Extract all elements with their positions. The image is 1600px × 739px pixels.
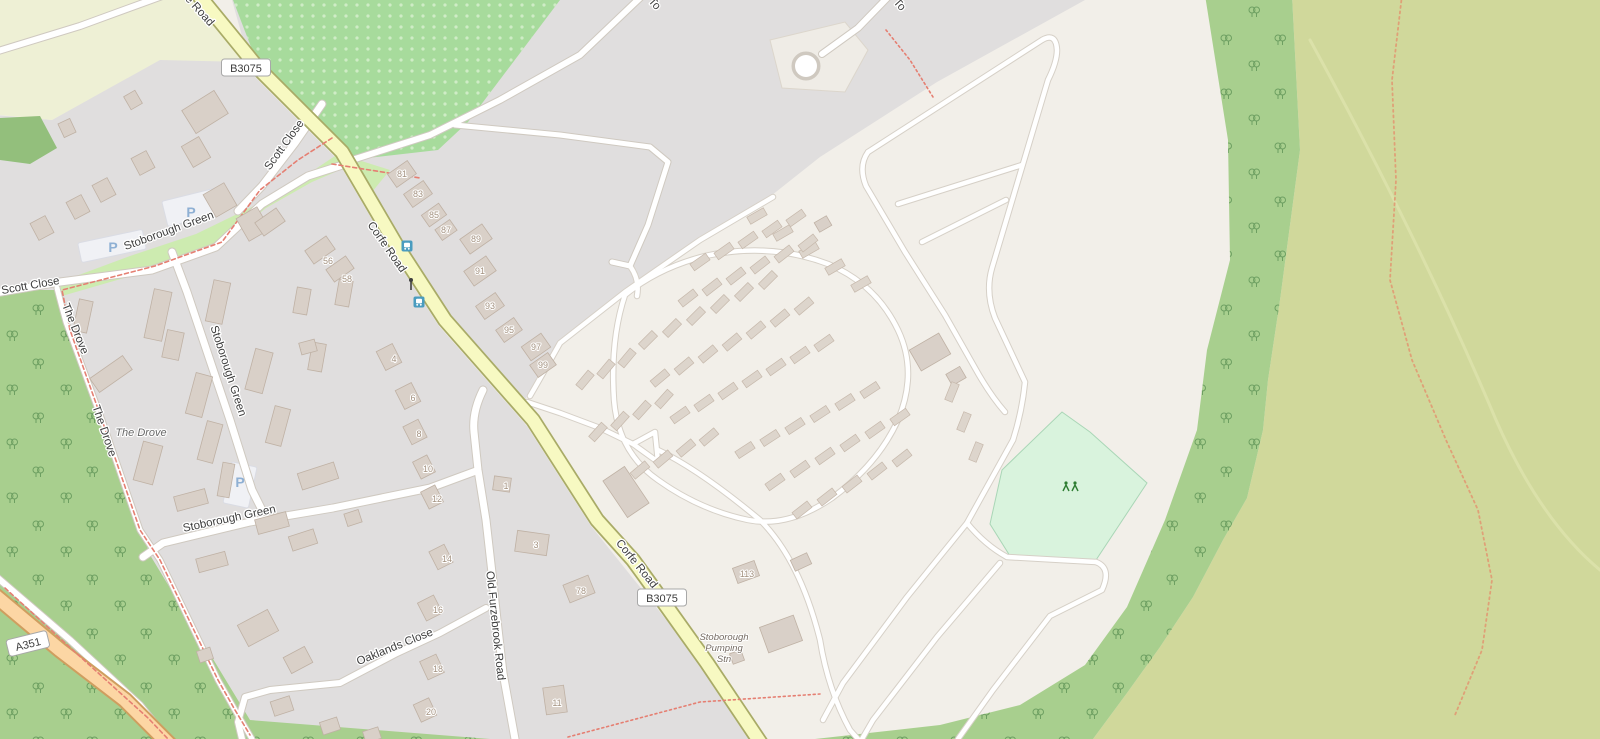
house-number-label: 85 xyxy=(429,210,439,220)
place-name-label: The Drove xyxy=(115,427,166,439)
house-number-label: 89 xyxy=(471,234,481,244)
bus-stop-icon xyxy=(414,297,425,308)
house-number-label: 113 xyxy=(740,569,754,579)
house-number-label: 97 xyxy=(531,342,541,352)
house-number-label: 87 xyxy=(441,225,451,235)
house-number-label: 11 xyxy=(552,698,561,708)
route-ref-text: B3075 xyxy=(646,593,678,605)
bus-glyph-wheel xyxy=(404,248,406,250)
map-canvas[interactable]: e RoadScott CloseStoborough GreenScott C… xyxy=(0,0,1600,739)
house-number-label: 83 xyxy=(413,189,423,199)
bus-glyph-wheel xyxy=(408,248,410,250)
house-number-label: 6 xyxy=(410,393,415,403)
building xyxy=(493,476,512,492)
house-number-label: 91 xyxy=(475,266,485,276)
house-number-label: 4 xyxy=(391,354,396,364)
building xyxy=(515,530,550,555)
parking-symbol: P xyxy=(186,204,195,220)
house-number-label: 99 xyxy=(538,360,548,370)
playground-figure xyxy=(1073,481,1076,484)
house-number-label: 16 xyxy=(433,605,443,615)
bus-stop-icon xyxy=(402,241,413,252)
house-number-label: 20 xyxy=(426,707,436,717)
bus-glyph-wheel xyxy=(420,304,422,306)
house-number-label: 78 xyxy=(576,586,586,596)
signal-head xyxy=(409,278,413,282)
house-number-label: 18 xyxy=(433,664,443,674)
house-number-label: 56 xyxy=(323,256,333,266)
house-number-label: 81 xyxy=(397,169,407,179)
parking-symbol: P xyxy=(108,239,117,255)
poi-name-label: Stn xyxy=(717,654,731,665)
house-number-label: 8 xyxy=(416,429,421,439)
house-number-label: 12 xyxy=(432,494,442,504)
poi-name-label: Stoborough xyxy=(699,632,748,643)
house-number-label: 1 xyxy=(503,481,508,491)
house-number-label: 3 xyxy=(533,540,538,550)
house-number-label: 14 xyxy=(442,554,452,564)
route-ref-badge: B3075 xyxy=(222,59,271,76)
bus-glyph-wheel xyxy=(416,304,418,306)
bus-glyph xyxy=(404,243,410,248)
house-number-label: 58 xyxy=(342,274,352,284)
route-ref-text: B3075 xyxy=(230,63,262,75)
playground-figure xyxy=(1064,481,1067,484)
house-number-label: 10 xyxy=(423,464,433,474)
parking-symbol: P xyxy=(235,474,244,490)
house-number-label: 93 xyxy=(485,301,495,311)
route-ref-badge: B3075 xyxy=(638,589,687,606)
poi-name-label: Pumping xyxy=(705,643,743,654)
bus-glyph xyxy=(416,299,422,304)
house-number-label: 95 xyxy=(504,325,514,335)
